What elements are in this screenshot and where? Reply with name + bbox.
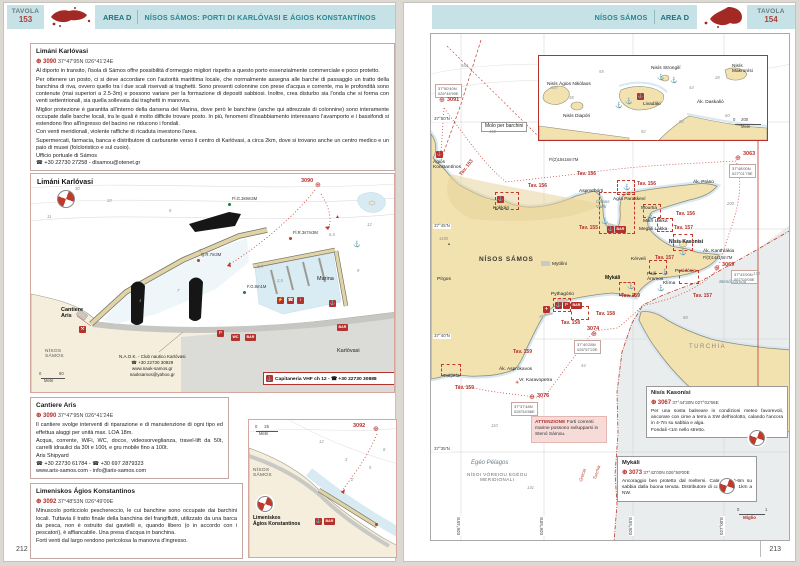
anchorage-icon: ⚓: [353, 242, 360, 249]
page-title: NÍSOS SÁMOS: PORTI DI KARLÓVASI E ÁGIOS …: [144, 13, 375, 22]
paragraph: Al diporto in transito, l'isola di Sámos…: [36, 68, 389, 75]
map-label: Metri: [44, 379, 53, 384]
map-label: Ák. Práso: [693, 180, 714, 185]
coverage-box: [441, 364, 461, 376]
map-label: 3,5: [257, 265, 263, 270]
light-label: Fl.G.3s9m3M: [232, 197, 257, 202]
map-label: 9: [357, 269, 359, 274]
map-label: Tav. 159: [621, 294, 640, 300]
map-label: Egéo Pélagos: [471, 460, 508, 467]
waypoint-icon: ⊕: [36, 58, 41, 65]
map-label: 38: [569, 96, 574, 101]
map-label: 37°40'N: [433, 334, 451, 339]
phone-icon: ☎: [287, 297, 294, 304]
tavola-badge: TAVOLA 153: [7, 5, 44, 29]
page-number: 212: [16, 546, 28, 553]
ferry-ship: [189, 212, 241, 232]
waypoint-number: 3067: [658, 400, 671, 406]
mykali-info-box: Mykáli ⊕ 3073 37°42'00N 026°59'00E Ancor…: [617, 456, 757, 502]
map-label: Tav. 158: [561, 321, 580, 327]
waypoint-id: 3090: [301, 178, 313, 184]
header-divider: [654, 10, 655, 24]
attention-title: ATTENZIONE: [535, 420, 565, 425]
map-label: 12: [319, 440, 324, 445]
map-label: Ák. Kanthrákia: [703, 249, 734, 254]
harbour-name: Limeniskos Ágios Konstantinos: [36, 488, 237, 497]
waypoint-number: 3090: [43, 59, 56, 65]
map-label: 588: [461, 64, 468, 69]
map-label: 44: [689, 86, 694, 91]
light-label: Fl(2)15s16m7M: [549, 158, 578, 163]
map-label: 110: [491, 424, 498, 429]
map-label: Agía Paraskeví: [613, 197, 646, 202]
map-label: Nisís Strongilí: [651, 66, 681, 71]
map-label: 1: [765, 508, 767, 513]
map-label: 0 200: [733, 118, 748, 123]
map-label: 2,5: [277, 279, 283, 284]
paragraph: Forti venti dal largo rendono pericolosa…: [36, 538, 237, 545]
harbour-name: Limáni Karlóvasi: [36, 48, 389, 57]
island-silhouette: [698, 5, 746, 29]
map-label: 37°45'N: [433, 224, 451, 229]
firm-web: www.aris-samos.com - info@aris-samos.com: [36, 468, 223, 475]
anchor-icon: ⚓: [315, 518, 322, 525]
samos-overview-chart: Nisís Ágios NikólaosNisís DiapóriNisís S…: [430, 33, 790, 541]
map-label: 88: [683, 316, 688, 321]
islets-inset-chart: Nisís Ágios NikólaosNisís DiapóriNisís S…: [538, 55, 768, 141]
waypoint-icon: ⊕: [651, 399, 656, 406]
club-nautico-note: N.A.O.K. - Club nautico Karlóvasi ☎ +30 …: [119, 354, 186, 377]
agios-konstantinos-chart: 0 25Metri3092⊕NÍSOS SÁMOSLimeniskos Ágio…: [248, 419, 397, 558]
waypoint-coords: 37°48'53N 026°49'09E: [58, 499, 113, 505]
tavola-number: 154: [747, 15, 795, 24]
map-label: Metri: [259, 432, 268, 437]
tavola-label: TAVOLA: [7, 8, 44, 15]
moored-ship: [189, 278, 203, 322]
map-label: 0: [737, 508, 739, 513]
peak-icon: ▲: [447, 242, 451, 246]
map-label: Pythagório: [551, 292, 574, 297]
tavola-number: 153: [7, 15, 44, 24]
map-label: 0 25: [255, 425, 269, 430]
red-light-icon: [375, 523, 378, 526]
danger-icon: ▲: [335, 215, 340, 221]
map-label: 50: [59, 372, 64, 377]
map-label: 460: [489, 130, 496, 135]
waypoint-line: ⊕ 3090 37°47'95N 026°41'24E: [36, 58, 389, 67]
map-label: Tav. 156: [637, 182, 656, 188]
capitaneria-box: ⚓ Capitaneria VHF ch 12 - ☎ +30 22730 30…: [263, 372, 395, 385]
waypoint-line: ⊕ 3067 37°44'30N 027°02'66E: [651, 399, 783, 408]
map-label: 55: [599, 70, 604, 75]
compass-rose: [719, 478, 735, 494]
firm-phones: ☎ +30 22730 61784 - ☎ +30 697 2879323: [36, 461, 223, 468]
map-label: Kérveli: [631, 257, 646, 262]
waypoint-symbol: ⊕: [714, 266, 720, 272]
map-label: Tav. 157: [655, 256, 674, 262]
map-label: 30: [75, 187, 80, 192]
light-label: Q.R.7m3M: [201, 253, 221, 258]
waypoint-id: 3069: [722, 262, 734, 268]
map-label: Livadáki: [643, 102, 661, 107]
paragraph: Supermercati, farmacia, banca e distribu…: [36, 138, 389, 153]
map-label: 60: [725, 114, 730, 119]
coverage-box: [679, 270, 699, 284]
map-label: Psilí Ámmos: [647, 272, 663, 283]
anchorage-icon: ⚓: [615, 103, 622, 110]
map-label: Nisís Makronísi: [732, 64, 753, 75]
paragraph: Per ottenere un posto, ci si deve accord…: [36, 77, 389, 106]
waypoint-number: 3090: [43, 413, 56, 419]
map-label: 647: [551, 86, 558, 91]
waypoint-symbol: ⊕: [373, 427, 379, 433]
map-label: 027°00'E: [720, 516, 725, 536]
waypoint-coords: 37°44'30N 027°02'66E: [672, 400, 718, 405]
map-label: Tav. 157: [693, 294, 712, 300]
map-label: 2: [351, 478, 353, 483]
coverage-box: [657, 218, 673, 232]
anchorage-icon: ⚓: [679, 250, 686, 257]
capitaneria-text: Capitaneria VHF ch 12 - ☎ +30 22730 3088…: [275, 376, 377, 382]
map-label: 44: [581, 364, 586, 369]
waypoint-id: 3091: [447, 97, 459, 103]
waypoint-symbol: ⊕: [529, 395, 535, 401]
paragraph: Minuscolo porticciolo peschereccio, le c…: [36, 508, 237, 537]
book-spread: { "glyphs": {"waypoint":"⊕","anchor":"⚓"…: [0, 0, 800, 566]
anchor-icon: ⚓: [555, 302, 562, 309]
bar-icon: BAR: [571, 302, 582, 309]
anchorage-icon: ⚓: [657, 286, 664, 293]
attention-box: ATTENZIONE Forti correnti marine possono…: [531, 416, 607, 443]
waypoint-icon: ⊕: [622, 469, 627, 476]
bar-icon: BAR: [245, 334, 256, 341]
harbour-icon: ⚓: [637, 93, 644, 100]
waypoint-number: 3092: [43, 499, 56, 505]
page-right: NÍSOS SÁMOS AREA D TAVOLA 154: [403, 2, 796, 562]
map-label: Tav. 156: [528, 184, 547, 190]
coverage-box: [673, 234, 693, 251]
waypoint-symbol: ⊕: [315, 183, 321, 189]
shipyard-icon: ⚒: [79, 326, 86, 333]
coverage-box: [495, 192, 519, 210]
red-light-icon: [289, 237, 292, 240]
anchorage-icon: ⚓: [657, 75, 664, 82]
footer-rule: [760, 541, 761, 557]
map-label: NÍSOS SÁMOS: [253, 468, 272, 479]
depth-contours: [31, 184, 395, 221]
waypoint-symbol: ⊕: [735, 156, 741, 162]
map-label: Metri: [741, 125, 750, 130]
tavola-label: TAVOLA: [747, 8, 795, 15]
header-bar: AREA D NÍSOS SÁMOS: PORTI DI KARLÓVASI E…: [95, 5, 395, 29]
anchorage-icon: ⚓: [601, 219, 608, 226]
waypoint-id: 3076: [537, 393, 549, 399]
anchorage-icon: ⚓: [623, 185, 630, 192]
waypoint-icon: ⊕: [36, 498, 41, 505]
page-left: TAVOLA 153 AREA D NÍSOS SÁMOS: PORTI DI …: [3, 2, 396, 562]
map-label: 200: [727, 202, 734, 207]
map-label: NÍSOS SÁMOS: [45, 349, 64, 360]
island-silhouette-svg: [698, 5, 746, 29]
waypoint-coords: 37°37'48N 026°54'86E: [511, 402, 538, 416]
airport-icon: ✈: [543, 306, 550, 313]
header-divider: [137, 10, 138, 24]
bar-icon: BAR: [324, 518, 335, 525]
map-label: 026°50'E: [540, 516, 545, 536]
waypoint-line: ⊕ 3092 37°48'53N 026°49'09E: [36, 498, 237, 507]
map-label: 20: [107, 199, 112, 204]
map-label: Tav. 156: [577, 172, 596, 178]
moored-ship: [131, 282, 145, 326]
office-contact: ☎ +30 22730 27258 - dlsamou@otenet.gr: [36, 160, 389, 167]
light-label: Fl(3)14s14m7M: [703, 256, 732, 261]
waypoint-coords: 37°47'95N 026°41'24E: [58, 59, 113, 65]
map-label: 141: [527, 486, 534, 491]
shipyard-name: Cantiere Aris: [36, 402, 223, 411]
anchor-icon: ⚓: [266, 375, 273, 382]
map-label: Tav. 159: [513, 350, 532, 356]
anchor-icon: ⚓: [607, 226, 614, 233]
parking-icon: P: [217, 330, 224, 337]
island-silhouette: [45, 5, 93, 29]
anchorage-name: Nisís Kasonísi: [651, 390, 783, 398]
chart-title: Limáni Karlóvasi: [37, 179, 93, 187]
molo-label: Molo per barchini: [481, 122, 527, 132]
page-number: 213: [769, 546, 781, 553]
waypoint-coords: 37°42'00N 026°59'00E: [643, 470, 689, 475]
green-light-icon: [228, 203, 231, 206]
map-label: Cantiere Aris: [61, 307, 83, 319]
map-label: 5: [369, 466, 371, 471]
map-label: 4: [139, 299, 141, 304]
map-label: NÍSOS SÁMOS: [479, 256, 534, 263]
map-label: Tav. 157: [674, 226, 693, 232]
tavola-badge: TAVOLA 154: [747, 5, 795, 29]
map-label: 28: [715, 76, 720, 81]
waypoint-coords: 37°40'28N 026°57'22E: [574, 340, 601, 354]
anchorage-icon: ⚓: [627, 284, 634, 291]
map-label: 92: [679, 120, 684, 125]
paragraph: Per una sosta balneare in condizioni met…: [651, 409, 783, 428]
kasonisi-info-box: Nisís Kasonísi ⊕ 3067 37°44'30N 027°02'6…: [646, 386, 788, 438]
map-label: 6,5: [329, 233, 335, 238]
parking-icon: P: [563, 302, 570, 309]
paragraph: Con venti meridionali, violente raffiche…: [36, 129, 389, 136]
map-label: 92: [641, 130, 646, 135]
bar-icon: BAR: [337, 324, 348, 331]
map-label: 37°50'N: [433, 117, 451, 122]
light-label: Fl.R.3s7m3M: [293, 231, 318, 236]
map-label: 3: [345, 458, 347, 463]
map-label: Stenó Sámou: [719, 280, 746, 285]
compass-rose: [257, 496, 273, 512]
waypoint-line: ⊕ 3073 37°42'00N 026°59'00E: [622, 469, 752, 478]
map-label: 5: [199, 249, 201, 254]
limeniskos-info-box: Limeniskos Ágios Konstantinos ⊕ 3092 37°…: [30, 483, 243, 559]
map-label: Mykáli: [605, 276, 620, 282]
area-label: AREA D: [103, 13, 131, 22]
firm-name: Aris Shipyard: [36, 453, 223, 460]
map-label: 8: [169, 209, 171, 214]
compass-rose: [57, 190, 75, 208]
map-label: Karlóvasi: [337, 348, 360, 354]
electricity-icon: ⚡: [277, 297, 284, 304]
paragraph: Miglior protezione è garantita all'inter…: [36, 107, 389, 129]
paragraph: Acqua, corrente, WiFi, WC, docce, videos…: [36, 438, 223, 453]
rock-hazard-icon: ✳: [515, 381, 519, 387]
map-label: 026°55'E: [629, 516, 634, 536]
town-block: [541, 261, 550, 266]
waypoint-id: 3063: [743, 151, 755, 157]
wc-icon: WC: [231, 334, 240, 341]
map-label: Klíma: [663, 281, 675, 286]
waypoint-symbol: ⊕: [439, 98, 445, 104]
map-label: Vr. Karavopetra: [519, 378, 552, 383]
waypoint-number: 3073: [629, 470, 642, 476]
anchorage-name: Mykáli: [622, 460, 752, 468]
map-label: 37°35'N: [433, 447, 451, 452]
chart-title: Limeniskos Ágios Konstantinos: [253, 516, 300, 527]
map-label: 11: [47, 215, 51, 220]
bar-icon: BAR: [615, 226, 626, 233]
anchorage-icon: ⚓: [670, 78, 677, 85]
map-label: 7: [177, 289, 179, 294]
map-label: Ák. Daskalió: [697, 100, 724, 105]
map-label: Mytilíni: [552, 262, 567, 267]
cantiere-info-box: Cantiere Aris ⊕ 3090 37°47'95N 026°41'24…: [30, 397, 229, 479]
map-label: 8: [383, 448, 385, 453]
anchorage-icon: ⚓: [625, 99, 632, 106]
map-label: Tav. 155: [579, 226, 598, 232]
approach-route: [341, 434, 377, 492]
waypoint-line: ⊕ 3090 37°47'95N 026°41'24E: [36, 412, 223, 421]
map-label: Pírgos: [437, 277, 451, 282]
island-silhouette-svg: [45, 5, 93, 29]
karlovasi-chart-svg: [31, 174, 395, 393]
paragraph: Il cantiere svolge interventi di riparaz…: [36, 422, 223, 437]
map-label: 12: [367, 223, 372, 228]
waypoint-id: 3092: [353, 423, 365, 429]
map-label: Tav. 158: [596, 312, 615, 318]
map-label: Nisís Diapóri: [563, 114, 590, 119]
area-label: AREA D: [661, 13, 689, 22]
red-light-icon: [197, 259, 200, 262]
map-label: Ágios Konstantínos: [433, 160, 461, 171]
map-label: Tav. 156: [676, 212, 695, 218]
map-label: Tav. 159: [455, 386, 474, 392]
map-label: Marina: [317, 276, 334, 282]
page-title: NÍSOS SÁMOS: [595, 13, 648, 22]
waypoint-coords: 37°48'00N 027°01'75E: [729, 164, 756, 178]
harbour-icon: ⚓: [436, 151, 443, 158]
map-label: TURCHIA: [689, 344, 726, 351]
map-label: Miglio: [743, 516, 756, 521]
map-label: 0: [39, 372, 41, 377]
map-label: Ák. Asprókavos: [499, 367, 532, 372]
green-light-icon: [243, 291, 246, 294]
waypoint-coords: 37°50'40N 026°46'90E: [435, 84, 462, 98]
waypoint-coords: 37°47'95N 026°41'24E: [58, 413, 113, 419]
waypoint-symbol: ⊕: [591, 332, 597, 338]
compass-rose: [749, 430, 765, 446]
header-bar: NÍSOS SÁMOS AREA D: [432, 5, 697, 29]
karlovasi-chart: ⚓ Capitaneria VHF ch 12 - ☎ +30 22730 30…: [30, 173, 395, 393]
light-label: F.G.8m1M: [247, 285, 266, 290]
anchor-icon: ⚓: [329, 300, 336, 307]
karlovasi-info-box: Limáni Karlóvasi ⊕ 3090 37°47'95N 026°41…: [30, 43, 395, 171]
waypoint-icon: ⊕: [36, 412, 41, 419]
map-label: NÍSOI VÓREIOU EGÉOU MERIDIONALI: [467, 472, 527, 482]
map-label: 026°45'E: [457, 516, 462, 536]
info-icon: i: [297, 297, 304, 304]
map-label: 130: [753, 272, 760, 277]
